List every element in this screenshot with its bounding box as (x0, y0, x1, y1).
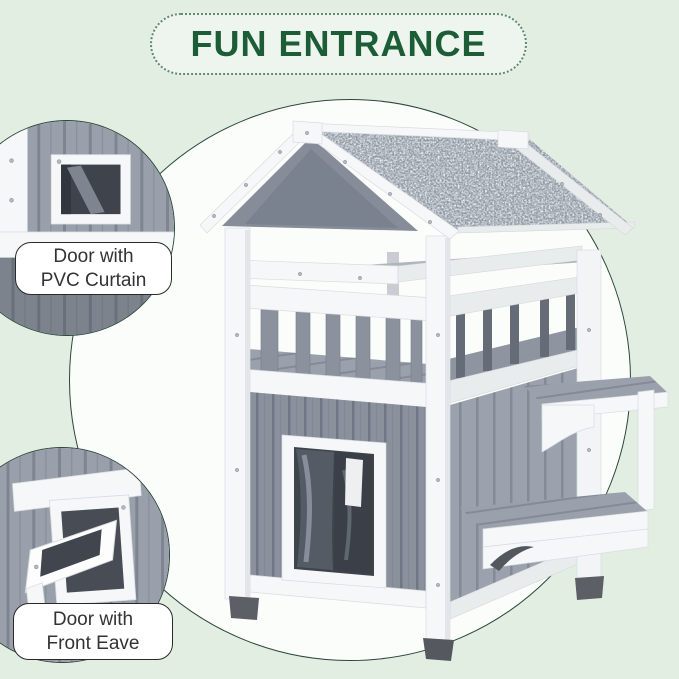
label-pvc-curtain-line1: Door with (53, 245, 133, 269)
roof-group (200, 121, 635, 239)
front-door (282, 435, 386, 588)
title-banner: FUN ENTRANCE (150, 13, 527, 75)
label-front-eave-line1: Door with (53, 608, 133, 632)
product-infographic: Door with PVC Curtain Door with Front Ea… (0, 0, 679, 679)
label-front-eave: Door with Front Eave (13, 603, 173, 660)
label-pvc-curtain: Door with PVC Curtain (15, 242, 172, 295)
upper-frame-beams (236, 246, 582, 284)
banner-title: FUN ENTRANCE (191, 23, 487, 65)
label-pvc-curtain-line2: PVC Curtain (41, 269, 147, 293)
label-front-eave-line2: Front Eave (47, 632, 140, 656)
